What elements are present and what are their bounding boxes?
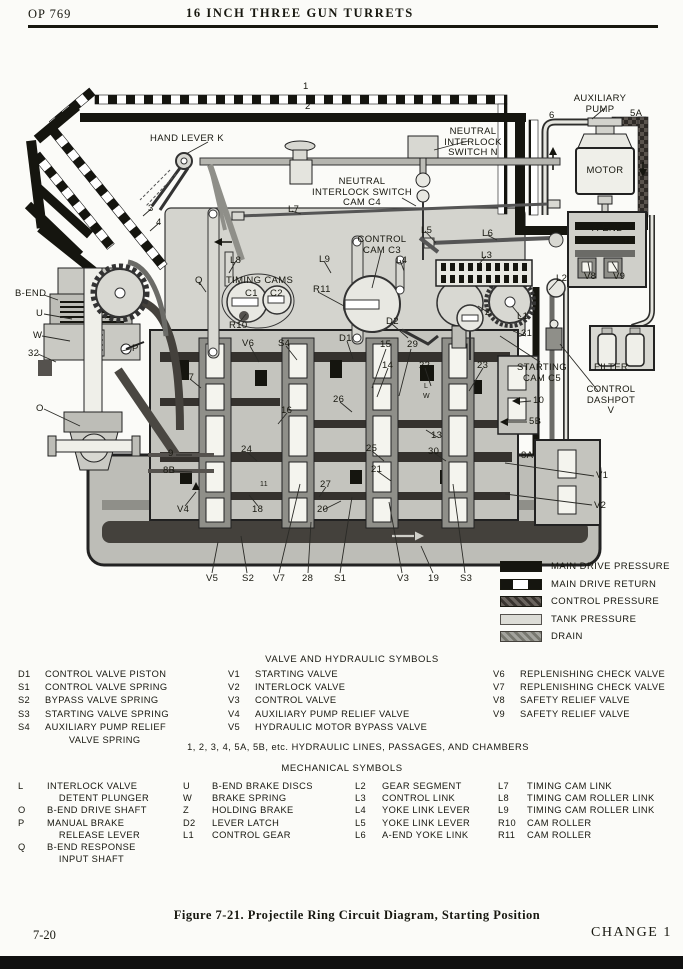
symbol-code: P	[18, 817, 47, 841]
symbol-code: R10	[498, 817, 527, 829]
symbol-row-l8: L8TIMING CAM ROLLER LINK	[498, 792, 655, 804]
symbol-description: B-END RESPONSE INPUT SHAFT	[47, 841, 136, 865]
legend-label: TANK PRESSURE	[551, 614, 636, 625]
symbol-description: CONTROL VALVE PISTON	[45, 668, 166, 681]
mechanical-symbols-col2: UB-END BRAKE DISCSWBRAKE SPRINGZHOLDING …	[183, 780, 313, 841]
symbol-description: REPLENISHING CHECK VALVE	[520, 681, 665, 694]
symbol-code: V2	[228, 681, 255, 694]
symbol-code: V6	[493, 668, 520, 681]
symbol-code: S1	[18, 681, 45, 694]
symbol-description: B-END DRIVE SHAFT	[47, 804, 147, 816]
symbol-description: CAM ROLLER	[527, 829, 591, 841]
main-drive-return-swatch	[500, 579, 542, 590]
symbol-row-u: UB-END BRAKE DISCS	[183, 780, 313, 792]
symbol-row-v1: V1STARTING VALVE	[228, 668, 427, 681]
line-legend: MAIN DRIVE PRESSUREMAIN DRIVE RETURNCONT…	[500, 561, 670, 649]
symbol-code: L2	[355, 780, 382, 792]
symbol-code: L1	[183, 829, 212, 841]
symbol-description: YOKE LINK LEVER	[382, 804, 470, 816]
manual-page: OP 769 16 INCH THREE GUN TURRETS	[0, 0, 683, 969]
symbol-description: STARTING VALVE SPRING	[45, 708, 169, 721]
symbol-row-l9: L9TIMING CAM ROLLER LINK	[498, 804, 655, 816]
legend-label: MAIN DRIVE RETURN	[551, 579, 656, 590]
mechanical-symbols-col1: LINTERLOCK VALVE DETENT PLUNGEROB-END DR…	[18, 780, 149, 865]
control-pressure-swatch	[500, 596, 542, 607]
hydraulic-lines-note: 1, 2, 3, 4, 5A, 5B, etc. HYDRAULIC LINES…	[187, 742, 529, 752]
symbol-row-l7: L7TIMING CAM LINK	[498, 780, 655, 792]
symbol-code: L	[18, 780, 47, 804]
mechanical-symbols-col3: L2GEAR SEGMENTL3CONTROL LINKL4YOKE LINK …	[355, 780, 470, 841]
symbol-row-d1: D1CONTROL VALVE PISTON	[18, 668, 169, 681]
symbol-description: B-END BRAKE DISCS	[212, 780, 313, 792]
symbol-row-r10: R10CAM ROLLER	[498, 817, 655, 829]
symbol-code: Q	[18, 841, 47, 865]
scan-edge-bar	[0, 956, 683, 969]
legend-item-main-drive-pressure: MAIN DRIVE PRESSURE	[500, 561, 670, 572]
symbol-code: V7	[493, 681, 520, 694]
symbol-code: W	[183, 792, 212, 804]
symbol-code: V9	[493, 708, 520, 721]
symbol-row-v9: V9SAFETY RELIEF VALVE	[493, 708, 665, 721]
legend-label: DRAIN	[551, 631, 583, 642]
valve-symbols-col3: V6REPLENISHING CHECK VALVEV7REPLENISHING…	[493, 668, 665, 721]
symbol-row-l4: L4YOKE LINK LEVER	[355, 804, 470, 816]
page-number: 7-20	[33, 928, 56, 943]
symbol-code: S3	[18, 708, 45, 721]
symbol-code: V1	[228, 668, 255, 681]
valve-symbols-col2: V1STARTING VALVEV2INTERLOCK VALVEV3CONTR…	[228, 668, 427, 734]
symbol-row-s4: S4AUXILIARY PUMP RELIEF VALVE SPRING	[18, 721, 169, 747]
symbol-code: L4	[355, 804, 382, 816]
symbol-code: R11	[498, 829, 527, 841]
symbol-row-v2: V2INTERLOCK VALVE	[228, 681, 427, 694]
symbol-code: S2	[18, 694, 45, 707]
figure-caption: Figure 7-21. Projectile Ring Circuit Dia…	[174, 908, 541, 923]
symbol-description: CONTROL LINK	[382, 792, 455, 804]
symbol-description: TIMING CAM LINK	[527, 780, 612, 792]
symbol-code: V4	[228, 708, 255, 721]
symbol-description: INTERLOCK VALVE	[255, 681, 345, 694]
symbol-code: L8	[498, 792, 527, 804]
symbol-description: SAFETY RELIEF VALVE	[520, 708, 630, 721]
symbol-description: SAFETY RELIEF VALVE	[520, 694, 630, 707]
valve-symbols-heading: VALVE AND HYDRAULIC SYMBOLS	[265, 654, 439, 665]
symbol-row-w: WBRAKE SPRING	[183, 792, 313, 804]
symbol-description: MANUAL BRAKE RELEASE LEVER	[47, 817, 140, 841]
legend-item-main-drive-return: MAIN DRIVE RETURN	[500, 579, 670, 590]
symbol-code: L9	[498, 804, 527, 816]
legend-label: MAIN DRIVE PRESSURE	[551, 561, 670, 572]
mechanical-symbols-col4: L7TIMING CAM LINKL8TIMING CAM ROLLER LIN…	[498, 780, 655, 841]
legend-item-drain: DRAIN	[500, 631, 670, 642]
symbol-code: L5	[355, 817, 382, 829]
symbol-code: O	[18, 804, 47, 816]
symbol-description: AUXILIARY PUMP RELIEF VALVE	[255, 708, 410, 721]
symbol-code: V3	[228, 694, 255, 707]
symbol-row-r11: R11CAM ROLLER	[498, 829, 655, 841]
symbol-row-v7: V7REPLENISHING CHECK VALVE	[493, 681, 665, 694]
symbol-code: D1	[18, 668, 45, 681]
symbol-code: Z	[183, 804, 212, 816]
symbol-description: HOLDING BRAKE	[212, 804, 294, 816]
symbol-row-s2: S2BYPASS VALVE SPRING	[18, 694, 169, 707]
legend-item-control-pressure: CONTROL PRESSURE	[500, 596, 670, 607]
symbol-code: S4	[18, 721, 45, 747]
mechanical-symbols-heading: MECHANICAL SYMBOLS	[281, 763, 402, 774]
symbol-row-o: OB-END DRIVE SHAFT	[18, 804, 149, 816]
symbol-code: L7	[498, 780, 527, 792]
symbol-code: V5	[228, 721, 255, 734]
symbol-code: L6	[355, 829, 382, 841]
symbol-description: YOKE LINK LEVER	[382, 817, 470, 829]
symbol-row-v4: V4AUXILIARY PUMP RELIEF VALVE	[228, 708, 427, 721]
symbol-row-l1: L1CONTROL GEAR	[183, 829, 313, 841]
symbol-code: L3	[355, 792, 382, 804]
symbol-row-s3: S3STARTING VALVE SPRING	[18, 708, 169, 721]
symbol-description: STARTING VALVE	[255, 668, 338, 681]
symbol-row-p: PMANUAL BRAKE RELEASE LEVER	[18, 817, 149, 841]
symbol-row-l3: L3CONTROL LINK	[355, 792, 470, 804]
symbol-description: REPLENISHING CHECK VALVE	[520, 668, 665, 681]
symbol-row-l5: L5YOKE LINK LEVER	[355, 817, 470, 829]
symbol-description: BYPASS VALVE SPRING	[45, 694, 159, 707]
symbol-row-s1: S1CONTROL VALVE SPRING	[18, 681, 169, 694]
symbol-row-z: ZHOLDING BRAKE	[183, 804, 313, 816]
tank-pressure-swatch	[500, 614, 542, 625]
filter-assembly	[590, 326, 654, 370]
drain-swatch	[500, 631, 542, 642]
symbol-row-l6: L6A-END YOKE LINK	[355, 829, 470, 841]
symbol-description: HYDRAULIC MOTOR BYPASS VALVE	[255, 721, 427, 734]
change-number: CHANGE 1	[591, 925, 672, 941]
symbol-description: CONTROL VALVE	[255, 694, 337, 707]
symbol-description: AUXILIARY PUMP RELIEF VALVE SPRING	[45, 721, 166, 747]
symbol-row-l2: L2GEAR SEGMENT	[355, 780, 470, 792]
symbol-description: A-END YOKE LINK	[382, 829, 468, 841]
symbol-description: GEAR SEGMENT	[382, 780, 462, 792]
legend-item-tank-pressure: TANK PRESSURE	[500, 614, 670, 625]
symbol-row-q: QB-END RESPONSE INPUT SHAFT	[18, 841, 149, 865]
symbol-description: CONTROL VALVE SPRING	[45, 681, 168, 694]
symbol-row-v3: V3CONTROL VALVE	[228, 694, 427, 707]
a-end-assembly	[568, 212, 652, 327]
valve-symbols-col1: D1CONTROL VALVE PISTONS1CONTROL VALVE SP…	[18, 668, 169, 747]
symbol-description: TIMING CAM ROLLER LINK	[527, 804, 655, 816]
symbol-row-v8: V8SAFETY RELIEF VALVE	[493, 694, 665, 707]
symbol-code: D2	[183, 817, 212, 829]
symbol-row-d2: D2LEVER LATCH	[183, 817, 313, 829]
legend-label: CONTROL PRESSURE	[551, 596, 659, 607]
main-drive-pressure-swatch	[500, 561, 542, 572]
symbol-description: BRAKE SPRING	[212, 792, 287, 804]
symbol-row-l: LINTERLOCK VALVE DETENT PLUNGER	[18, 780, 149, 804]
symbol-description: TIMING CAM ROLLER LINK	[527, 792, 655, 804]
symbol-description: LEVER LATCH	[212, 817, 279, 829]
symbol-code: V8	[493, 694, 520, 707]
symbol-row-v5: V5HYDRAULIC MOTOR BYPASS VALVE	[228, 721, 427, 734]
symbol-description: CONTROL GEAR	[212, 829, 291, 841]
symbol-description: INTERLOCK VALVE DETENT PLUNGER	[47, 780, 149, 804]
symbol-code: U	[183, 780, 212, 792]
symbol-row-v6: V6REPLENISHING CHECK VALVE	[493, 668, 665, 681]
symbol-description: CAM ROLLER	[527, 817, 591, 829]
